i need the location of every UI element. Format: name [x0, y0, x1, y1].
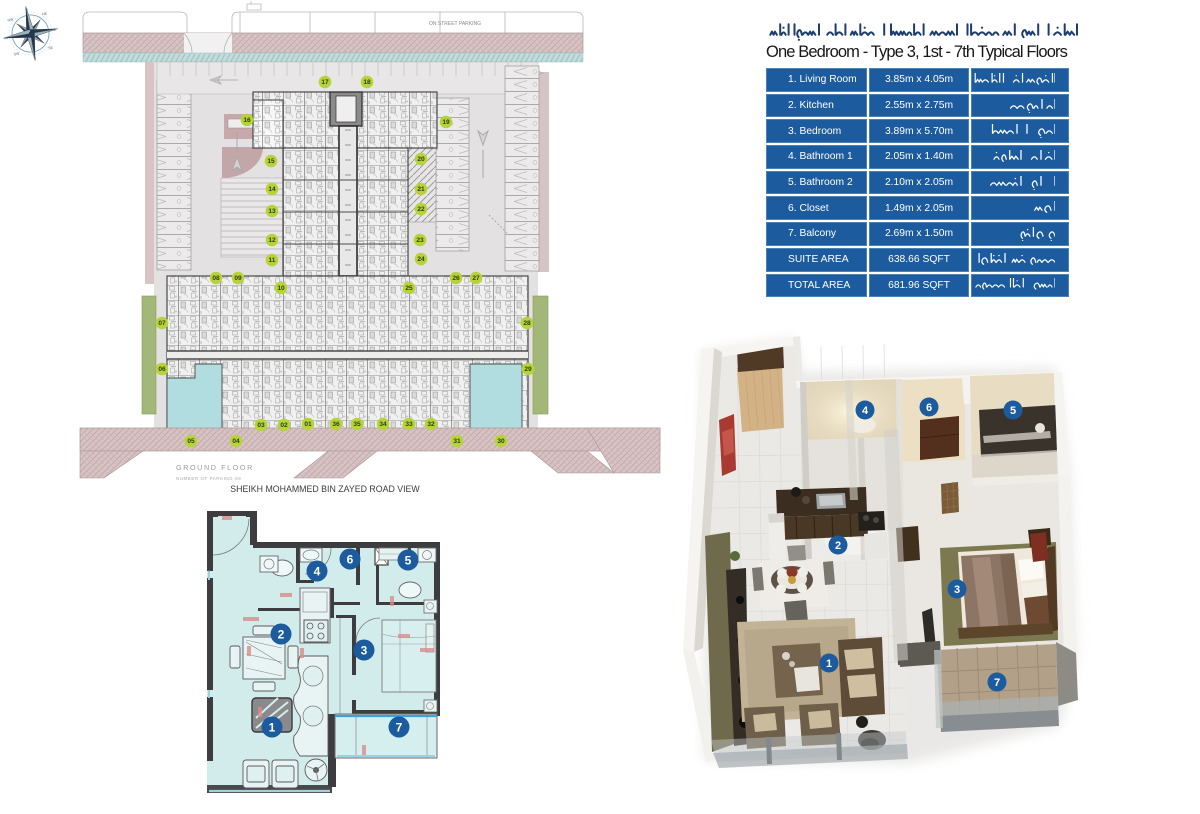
svg-text:15: 15: [267, 158, 275, 165]
svg-text:7: 7: [994, 677, 1000, 689]
svg-text:1: 1: [269, 720, 276, 734]
svg-text:11: 11: [269, 257, 276, 264]
svg-text:NW: NW: [7, 17, 14, 22]
svg-text:20: 20: [417, 156, 425, 163]
svg-text:03: 03: [257, 422, 265, 429]
svg-text:16: 16: [243, 117, 251, 124]
svg-text:ON STREET PARKING: ON STREET PARKING: [429, 21, 481, 27]
svg-text:NE: NE: [42, 11, 48, 16]
svg-text:02: 02: [280, 422, 288, 429]
svg-text:12: 12: [268, 237, 276, 244]
svg-text:S: S: [33, 56, 37, 60]
svg-text:05: 05: [187, 438, 195, 445]
svg-text:21: 21: [417, 186, 425, 193]
svg-text:25: 25: [405, 285, 413, 292]
svg-text:06: 06: [158, 366, 166, 373]
svg-text:E: E: [53, 27, 57, 31]
svg-text:23: 23: [416, 237, 424, 244]
svg-text:24: 24: [417, 256, 425, 263]
svg-text:4: 4: [862, 405, 869, 417]
svg-text:01: 01: [304, 421, 312, 428]
svg-text:31: 31: [453, 438, 461, 445]
svg-text:04: 04: [232, 438, 240, 445]
svg-text:5: 5: [405, 553, 412, 567]
svg-text:08: 08: [212, 275, 220, 282]
svg-text:SW: SW: [13, 51, 20, 56]
svg-text:3: 3: [361, 643, 368, 657]
svg-text:19: 19: [442, 119, 450, 126]
svg-text:33: 33: [405, 421, 413, 428]
svg-text:18: 18: [363, 79, 371, 86]
svg-text:10: 10: [277, 285, 285, 292]
svg-text:13: 13: [268, 208, 276, 215]
svg-text:28: 28: [523, 320, 531, 327]
svg-text:32: 32: [427, 421, 435, 428]
svg-text:34: 34: [379, 421, 387, 428]
svg-text:22: 22: [417, 206, 425, 213]
svg-text:SE: SE: [48, 46, 54, 51]
svg-text:29: 29: [524, 366, 532, 373]
svg-text:SHEIKH MOHAMMED BIN ZAYED ROAD: SHEIKH MOHAMMED BIN ZAYED ROAD VIEW: [230, 484, 420, 494]
svg-text:1: 1: [826, 658, 832, 670]
svg-text:7: 7: [396, 720, 403, 734]
svg-text:3: 3: [954, 584, 960, 596]
svg-text:26: 26: [452, 275, 460, 282]
svg-text:6: 6: [347, 552, 354, 566]
svg-text:36: 36: [332, 421, 340, 428]
svg-text:35: 35: [353, 421, 361, 428]
svg-text:07: 07: [158, 320, 166, 327]
svg-text:6: 6: [926, 402, 932, 414]
svg-text:17: 17: [321, 79, 329, 86]
svg-text:30: 30: [497, 438, 505, 445]
svg-text:5: 5: [1010, 405, 1016, 417]
svg-text:2: 2: [278, 627, 285, 641]
svg-text:NUMBER OF PARKING-59: NUMBER OF PARKING-59: [176, 476, 241, 481]
svg-text:4: 4: [314, 564, 321, 578]
svg-text:14: 14: [268, 186, 276, 193]
svg-text:27: 27: [472, 275, 480, 282]
svg-text:09: 09: [234, 275, 242, 282]
svg-text:N: N: [25, 8, 29, 12]
svg-text:2: 2: [835, 540, 841, 552]
svg-text:GROUND FLOOR: GROUND FLOOR: [176, 463, 254, 472]
